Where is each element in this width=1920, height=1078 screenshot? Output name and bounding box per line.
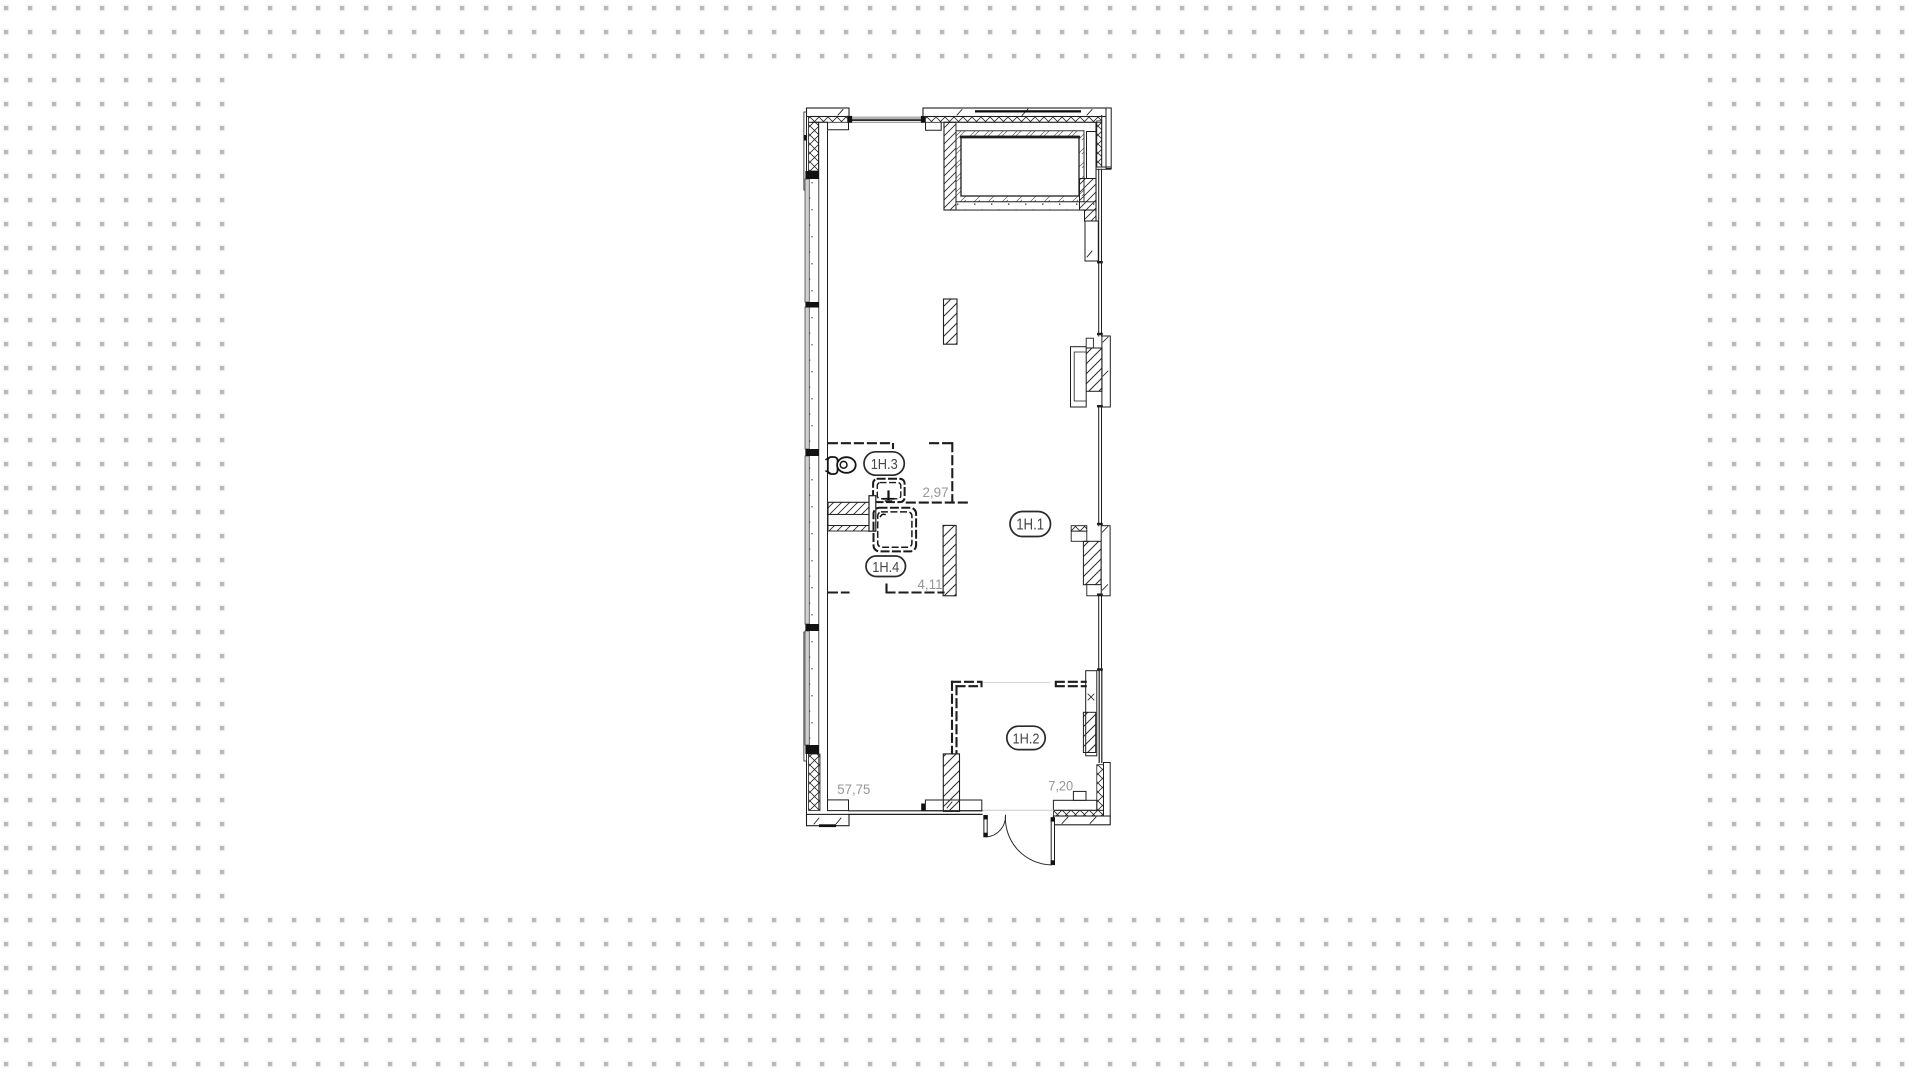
svg-text:1H.3: 1H.3 (871, 456, 898, 473)
svg-text:1H.4: 1H.4 (872, 559, 899, 576)
svg-text:4,11: 4,11 (918, 576, 943, 592)
svg-text:1H.2: 1H.2 (1013, 731, 1040, 748)
svg-text:2,97: 2,97 (923, 484, 949, 500)
svg-text:1H.1: 1H.1 (1016, 517, 1044, 534)
svg-text:7,20: 7,20 (1048, 778, 1073, 794)
svg-text:57,75: 57,75 (837, 781, 870, 797)
